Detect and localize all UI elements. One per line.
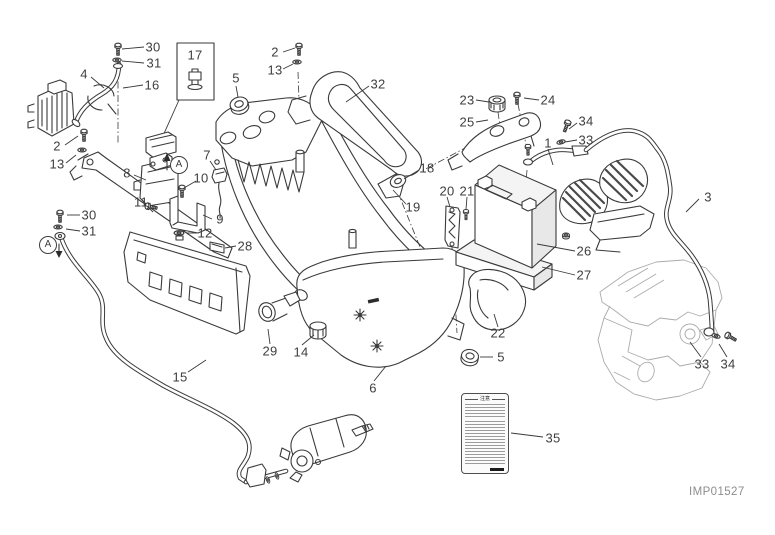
fuse-box [158,43,214,147]
breather-hose [71,64,123,128]
callout-10: 10 [193,172,208,185]
warning-sticker-footer-bar [490,468,504,471]
callout-35: 35 [545,432,560,445]
callout-2: 2 [53,140,61,153]
cable-socket [256,292,300,324]
callout-17: 17 [187,49,202,62]
view-marker-a-0: A [170,156,188,174]
warning-sticker-title: 注意 [465,397,505,402]
callout-12: 12 [197,227,212,240]
warning-sticker-text-block [465,404,505,417]
diagram-code: IMP01527 [689,486,745,498]
starter-motor [280,415,373,482]
callout-32: 32 [370,78,385,91]
grommet-lower [460,348,480,367]
callout-28: 28 [237,240,252,253]
battery-box-cover [293,248,464,367]
callout-15: 15 [172,371,187,384]
callout-19: 19 [405,201,420,214]
callout-4: 4 [80,68,88,81]
warning-sticker-text-block [465,421,505,465]
callout-33: 33 [694,358,709,371]
callout-29: 29 [262,345,277,358]
voltage-regulator [28,80,74,136]
callout-22: 22 [490,327,505,340]
callout-24: 24 [540,94,555,107]
callout-27: 27 [576,269,591,282]
callout-5: 5 [232,72,240,85]
callout-23: 23 [459,94,474,107]
callout-13: 13 [267,64,282,77]
callout-11: 11 [134,196,148,209]
callout-16: 16 [144,79,159,92]
diagram-line-art [0,0,775,535]
callout-5: 5 [497,351,505,364]
callout-26: 26 [576,245,591,258]
callout-14: 14 [293,346,308,359]
callout-8: 8 [123,167,131,180]
parts-diagram-canvas: 3031416175213322324253433132137108119122… [0,0,775,535]
callout-6: 6 [369,382,377,395]
battery [475,144,569,268]
callout-34: 34 [578,115,593,128]
callout-1: 1 [544,137,552,150]
callout-9: 9 [216,213,224,226]
callout-30: 30 [145,41,160,54]
callout-2: 2 [271,46,279,59]
callout-3: 3 [704,191,712,204]
callout-33: 33 [578,134,593,147]
callout-34: 34 [720,358,735,371]
view-marker-a-1: A [39,236,57,254]
callout-31: 31 [81,225,96,238]
callout-18: 18 [419,162,434,175]
wire-sensor [212,160,227,218]
callout-25: 25 [459,116,474,129]
callout-30: 30 [81,209,96,222]
callout-20: 20 [439,185,454,198]
callout-31: 31 [146,57,161,70]
warning-sticker: 注意 [461,393,509,474]
callout-21: 21 [459,185,474,198]
heat-shield [560,159,654,252]
callout-13: 13 [49,158,64,171]
callout-7: 7 [203,149,211,162]
